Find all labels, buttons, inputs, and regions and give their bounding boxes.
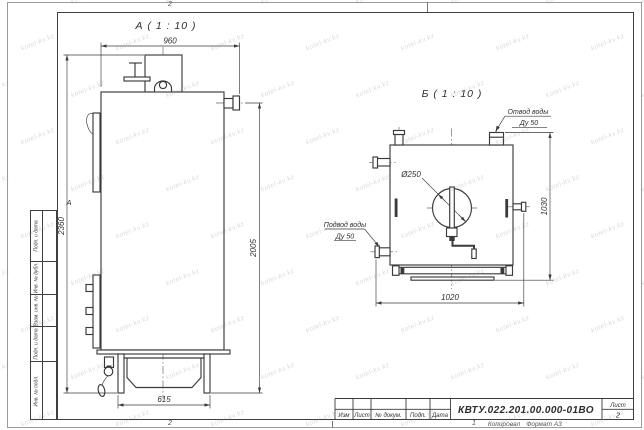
strip-cell-label: Подп. и дата [34, 328, 40, 359]
watermark-text: kotel-kv.kz [0, 0, 11, 5]
zone-row-letter: А [65, 198, 71, 207]
side-pipe-stub [224, 99, 233, 109]
note-text: Подвод воды [324, 221, 367, 229]
strip-cell-label: Инв. № дубл. [34, 263, 40, 294]
strip-label-col: Инв. № подл. [31, 362, 43, 419]
note-text: Ду 50 [335, 234, 354, 241]
boiler-body-front [101, 92, 224, 350]
base-skids [393, 266, 513, 280]
drawing-sheet: 2 2 1 Копировал Формат А3 Подп. и дата И… [0, 0, 644, 430]
strip-empty-col [43, 295, 56, 326]
stand-leg-right [204, 354, 210, 393]
view-a: А ( 1 : 10 ) [57, 20, 262, 409]
view-b-title: Б ( 1 : 10 ) [422, 88, 483, 100]
footer-format-label: Формат А3 [524, 421, 564, 428]
strip-cell-label: Инв. № подл. [34, 375, 40, 406]
stamp-sheet-number: 2 [615, 411, 621, 420]
strip-cell-label: Подп. и дата [34, 220, 40, 251]
note-text: Ду 50 [519, 120, 538, 127]
skid-end-cap [393, 266, 400, 276]
watermark-text: kotel-kv.kz [355, 0, 391, 5]
watermark-text: kotel-kv.kz [640, 174, 644, 194]
watermark-text: kotel-kv.kz [640, 268, 644, 288]
watermark-text: kotel-kv.kz [0, 174, 11, 194]
stamp-col-data: Дата [431, 413, 448, 419]
ash-pan-opening [127, 358, 201, 388]
skid-bolt [401, 268, 405, 274]
watermark-text: kotel-kv.kz [640, 362, 644, 382]
stamp-col-izm: Изм [338, 413, 349, 419]
watermark-text: kotel-kv.kz [0, 362, 11, 382]
watermark-text: kotel-kv.kz [640, 0, 644, 5]
damper-shaft [450, 187, 455, 228]
strip-label-col: Подп. и дата [31, 327, 43, 361]
plinth-plate [97, 350, 230, 354]
watermark-text: kotel-kv.kz [450, 0, 486, 5]
strip-label-col: Инв. № дубл. [31, 262, 43, 294]
strip-label-col: Взам. инв. № [31, 295, 43, 326]
dim-text: 1030 [540, 197, 549, 215]
strip-cell-inv-podl: Инв. № подл. [31, 361, 56, 419]
title-block: Изм Лист № докум. Подп. Дата КВТУ.022.20… [335, 399, 634, 421]
damper-shaft-box [447, 228, 458, 237]
lifting-eye-hole [159, 81, 166, 88]
skid-end-cap [506, 266, 513, 276]
stamp-sheet-label: Лист [609, 403, 625, 409]
strip-cell-label: Взам. инв. № [34, 295, 40, 326]
leader-line [365, 229, 380, 247]
zone-number-top: 2 [164, 1, 176, 8]
watermark-text: kotel-kv.kz [545, 0, 581, 5]
damper-nut [449, 237, 454, 242]
watermark-text: kotel-kv.kz [640, 80, 644, 100]
stand-leg-left [118, 354, 124, 393]
air-vent-stub [395, 135, 403, 146]
water-inlet-flange [375, 246, 379, 258]
hinge-bolt [86, 308, 93, 315]
dim-text: 615 [157, 395, 171, 404]
side-pipe-flange [233, 96, 240, 110]
strip-empty-col [43, 362, 56, 419]
strip-cell-inv-dubl: Инв. № дубл. [31, 261, 56, 294]
door-latch-hook [87, 114, 93, 134]
dim-text: 2005 [249, 239, 258, 258]
hinge-bolt [86, 285, 93, 292]
strip-empty-col [43, 327, 56, 361]
left-pipe-flange [373, 157, 378, 168]
stamp-col-podp: Подп. [410, 413, 426, 419]
view-a-title: А ( 1 : 10 ) [134, 20, 196, 32]
watermark-text: kotel-kv.kz [0, 80, 11, 100]
draft-lever-bar [124, 77, 150, 81]
skid-bottom-plate [411, 277, 494, 280]
zone-number-bottom-left: 2 [164, 420, 176, 427]
strip-cell-podp-data-1: Подп. и дата [31, 211, 56, 261]
watermark-text: kotel-kv.kz [70, 0, 106, 5]
note-outlet: Отвод воды Ду 50 [496, 108, 552, 132]
frame-side-strip: Подп. и дата Инв. № дубл. Взам. инв. № П… [30, 210, 57, 420]
drawing-canvas: А А ( 1 : 10 ) [57, 12, 634, 420]
damper-crank-grip [472, 249, 476, 259]
watermark-text: kotel-kv.kz [260, 0, 296, 5]
water-inlet-stub [379, 248, 390, 256]
watermark-text: kotel-kv.kz [20, 33, 56, 53]
note-inlet: Подвод воды Ду 50 [324, 221, 380, 247]
right-pipe-stub [513, 204, 522, 210]
hinge-bar-right [505, 199, 508, 218]
left-pipe-stub [377, 159, 390, 167]
hinge-bar-left [395, 199, 398, 218]
water-outlet-stub [490, 133, 504, 146]
strip-empty-col [43, 211, 56, 261]
strip-cell-podp-data-2: Подп. и дата [31, 326, 56, 361]
dim-text: 2360 [57, 217, 66, 236]
strip-empty-col [43, 262, 56, 294]
watermark-text: kotel-kv.kz [20, 127, 56, 147]
view-b: Б ( 1 : 10 ) Отвод воды Ду 50 [324, 88, 554, 307]
note-text: Отвод воды [508, 108, 550, 116]
door-hinge-strip-upper [93, 113, 100, 192]
stamp-col-list: Лист [353, 413, 369, 419]
zone-tick-bottom [332, 421, 333, 428]
zone-tick-top [427, 2, 428, 12]
strip-cell-vzam-inv: Взам. инв. № [31, 294, 56, 326]
stamp-col-doc: № докум. [375, 412, 401, 419]
stamp-doc-number: КВТУ.022.201.00.000-01ВО [458, 405, 594, 416]
dim-text: Ø250 [400, 170, 421, 179]
dim-text: 960 [163, 37, 177, 46]
dim-text: 1020 [441, 293, 459, 302]
dim-615: 615 [118, 395, 210, 409]
strip-label-col: Подп. и дата [31, 211, 43, 261]
ash-handle-grip [97, 384, 106, 397]
door-hinge-strip-lower [93, 275, 100, 348]
hinge-bolt [86, 328, 93, 335]
watermark-text: kotel-kv.kz [0, 268, 11, 288]
zone-number-bottom-right: 1 [468, 420, 480, 427]
leader-line [496, 116, 506, 131]
air-vent-cap [394, 131, 405, 135]
right-pipe-flange [522, 202, 526, 211]
footer-copied-label: Копировал [484, 421, 524, 428]
skid-bolt [501, 268, 505, 274]
ash-handle-knob [104, 367, 113, 376]
